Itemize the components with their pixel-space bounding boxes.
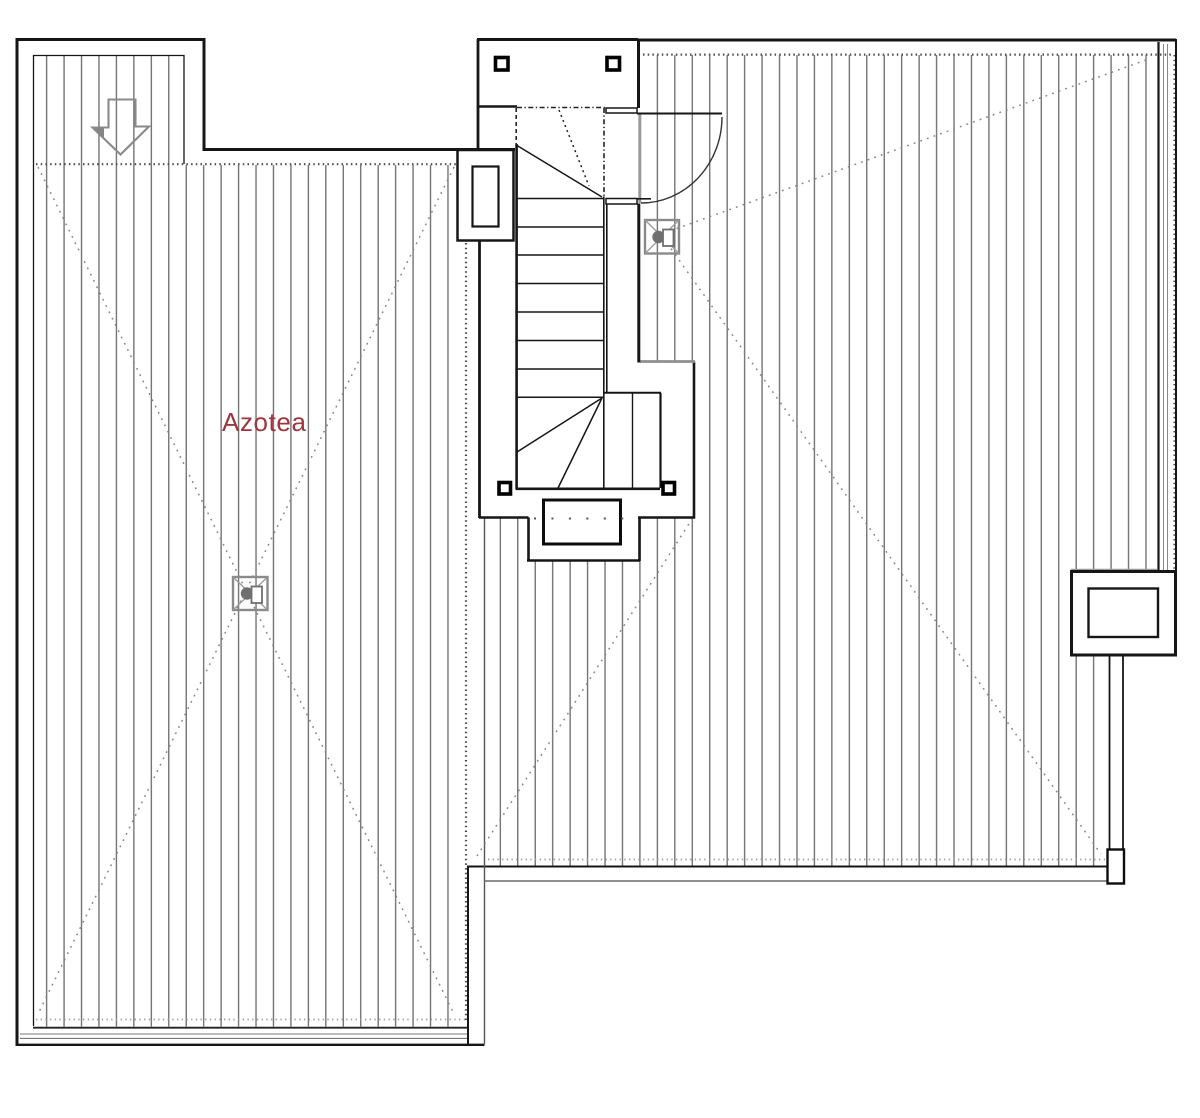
svg-text:Azotea: Azotea: [222, 407, 307, 437]
